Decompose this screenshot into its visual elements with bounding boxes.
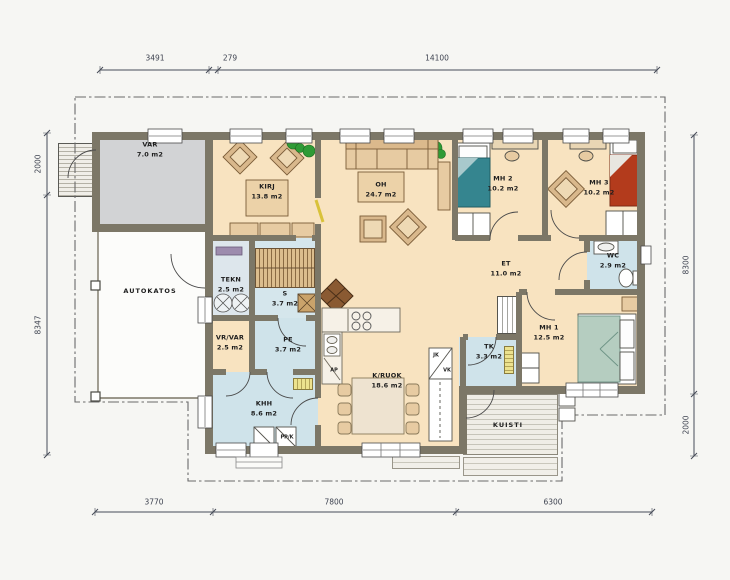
room-name: AUTOKATOS [123, 287, 176, 297]
room-name: MH 3 [584, 178, 615, 188]
fridge-label: JK [433, 354, 439, 359]
room-area: 18.6 m2 [372, 381, 403, 391]
room-area: 2.5 m2 [216, 343, 244, 353]
room-area: 2.9 m2 [600, 261, 626, 271]
room-label-tekn: TEKN 2.5 m2 [218, 275, 244, 295]
room-area: 3.3 m2 [476, 352, 502, 362]
sink-icon [324, 334, 340, 356]
cold-cabinet-label: VK [443, 369, 451, 374]
khh-door [250, 443, 278, 457]
room-label-mh2: MH 2 10.2 m2 [488, 174, 519, 194]
carport-post [91, 392, 100, 401]
floor-plan-structure [0, 0, 730, 580]
room-name: PE [275, 335, 301, 345]
dim-left-2: 8347 [34, 315, 42, 334]
room-area: 7.0 m2 [137, 150, 163, 160]
entry-step [236, 457, 282, 468]
room-name: ET [491, 259, 522, 269]
washer-label: PP/K [280, 436, 293, 441]
room-label-var: VAR 7.0 m2 [137, 140, 163, 160]
room-label-kuisti: KUISTI [493, 421, 523, 431]
carport-post [91, 281, 100, 290]
room-label-mh3: MH 3 10.2 m2 [584, 178, 615, 198]
room-area: 13.8 m2 [252, 192, 283, 202]
room-area: 24.7 m2 [366, 190, 397, 200]
dim-top-2: 279 [223, 54, 237, 62]
wc-vent [641, 246, 651, 264]
room-label-s: S 3.7 m2 [272, 289, 298, 309]
room-label-kirj: KIRJ 13.8 m2 [252, 182, 283, 202]
room-area: 2.5 m2 [218, 285, 244, 295]
room-label-oh: OH 24.7 m2 [366, 180, 397, 200]
dim-left-1: 2000 [34, 154, 42, 173]
room-name: KHH [251, 399, 277, 409]
room-area: 10.2 m2 [584, 188, 615, 198]
dim-bottom-3: 6300 [543, 498, 562, 506]
room-name: K/RUOK [372, 371, 403, 381]
room-name: MH 2 [488, 174, 519, 184]
room-area: 8.6 m2 [251, 409, 277, 419]
desk-chair [579, 151, 593, 161]
room-name: KUISTI [493, 421, 523, 431]
room-label-wc: WC 2.9 m2 [600, 251, 626, 271]
room-name: WC [600, 251, 626, 261]
room-name: OH [366, 180, 397, 190]
room-area: 3.7 m2 [275, 345, 301, 355]
room-area: 10.2 m2 [488, 184, 519, 194]
nightstand [622, 297, 638, 311]
sauna-stove-icon [298, 294, 316, 312]
armchair-icon [548, 171, 585, 208]
armchair-icon [390, 209, 427, 246]
carport-structure [91, 228, 205, 401]
desk-chair [505, 151, 519, 161]
floor-plan-page: VAR 7.0 m2 KIRJ 13.8 m2 OH 24.7 m2 MH 2 … [0, 0, 730, 580]
dim-right-2: 2000 [682, 415, 690, 434]
room-label-khh: KHH 8.6 m2 [251, 399, 277, 419]
room-name: KIRJ [252, 182, 283, 192]
dim-bottom-1: 3770 [144, 498, 163, 506]
room-label-mh1: MH 1 12.5 m2 [534, 323, 565, 343]
room-name: TEKN [218, 275, 244, 285]
room-label-kruok: K/RUOK 18.6 m2 [372, 371, 403, 391]
sliding-door-mark [316, 200, 323, 222]
room-label-et: ET 11.0 m2 [491, 259, 522, 279]
room-name: MH 1 [534, 323, 565, 333]
fridge-cabinet-icon [429, 348, 452, 441]
room-name: VAR [137, 140, 163, 150]
dim-bottom-2: 7800 [324, 498, 343, 506]
room-label-pe: PE 3.7 m2 [275, 335, 301, 355]
room-area: 11.0 m2 [491, 269, 522, 279]
dishwasher-label: AP [330, 369, 338, 374]
oh-furniture [346, 139, 450, 245]
dim-right-1: 8300 [682, 255, 690, 274]
dim-top-1: 3491 [145, 54, 164, 62]
room-area: 3.7 m2 [272, 299, 298, 309]
room-name: S [272, 289, 298, 299]
dim-top-3: 14100 [425, 54, 449, 62]
room-label-vrvar: VR/VAR 2.5 m2 [216, 333, 244, 353]
room-label-tk: TK 3.3 m2 [476, 342, 502, 362]
room-name: TK [476, 342, 502, 352]
console-table [438, 162, 450, 210]
room-name: VR/VAR [216, 333, 244, 343]
room-label-autokatos: AUTOKATOS [123, 287, 176, 297]
room-area: 12.5 m2 [534, 333, 565, 343]
